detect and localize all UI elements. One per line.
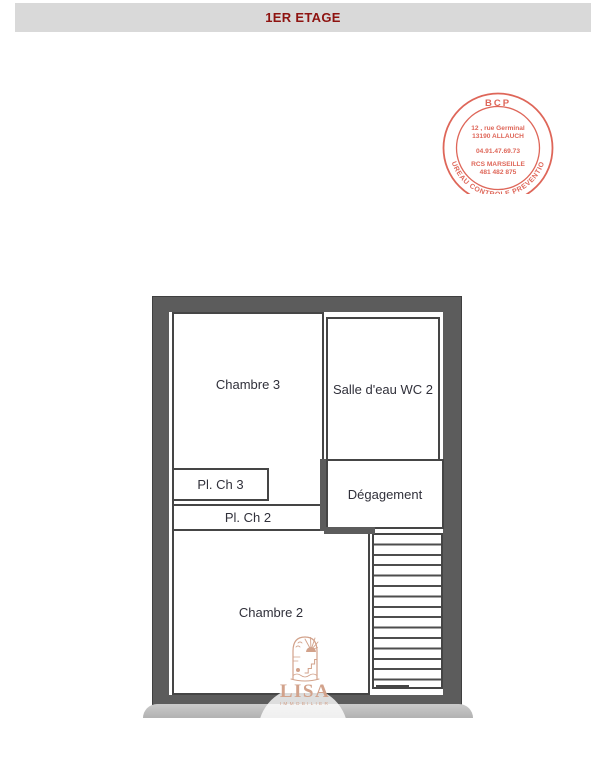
room-label: Dégagement — [348, 487, 422, 502]
wall-segment — [324, 527, 375, 534]
lisa-subtitle-text: IMMOBILIER — [280, 701, 330, 707]
stairs — [372, 533, 443, 689]
lisa-brand-text: LISA — [280, 681, 330, 702]
room-degagement: Dégagement — [326, 459, 444, 529]
stamp-bcp-text: BCP — [485, 98, 511, 109]
stairs-landing-line — [376, 685, 409, 688]
room-pl-ch-3: Pl. Ch 3 — [172, 468, 269, 501]
room-label: Pl. Ch 3 — [197, 477, 243, 492]
room-label: Salle d'eau WC 2 — [333, 382, 433, 397]
room-pl-ch-2: Pl. Ch 2 — [172, 504, 324, 531]
room-chambre-2: Chambre 2 — [172, 529, 370, 695]
room-label: Chambre 2 — [239, 605, 303, 620]
lisa-immobilier-logo: LISA IMMOBILIER — [274, 634, 336, 708]
stamp-address-line1: 12 , rue Germinal — [471, 125, 525, 132]
stamp-phone: 04.91.47.69.73 — [476, 148, 520, 155]
room-salle-deau-wc-2: Salle d'eau WC 2 — [326, 317, 440, 461]
stamp-rcs-line1: RCS MARSEILLE — [471, 161, 525, 168]
stamp-address-line2: 13190 ALLAUCH — [472, 133, 524, 140]
page-header: 1ER ETAGE — [15, 3, 591, 32]
bcp-stamp: BCP 12 , rue Germinal 13190 ALLAUCH 04.9… — [440, 91, 556, 194]
lisa-arch-icon — [291, 637, 319, 681]
stamp-rcs-line2: 481 482 875 — [480, 169, 517, 176]
room-label: Pl. Ch 2 — [225, 510, 271, 525]
room-label: Chambre 3 — [216, 377, 280, 392]
page-title: 1ER ETAGE — [265, 10, 340, 25]
wall-segment — [320, 459, 326, 531]
document-page: { "header": { "title": "1ER ETAGE", "bg_… — [0, 0, 606, 717]
